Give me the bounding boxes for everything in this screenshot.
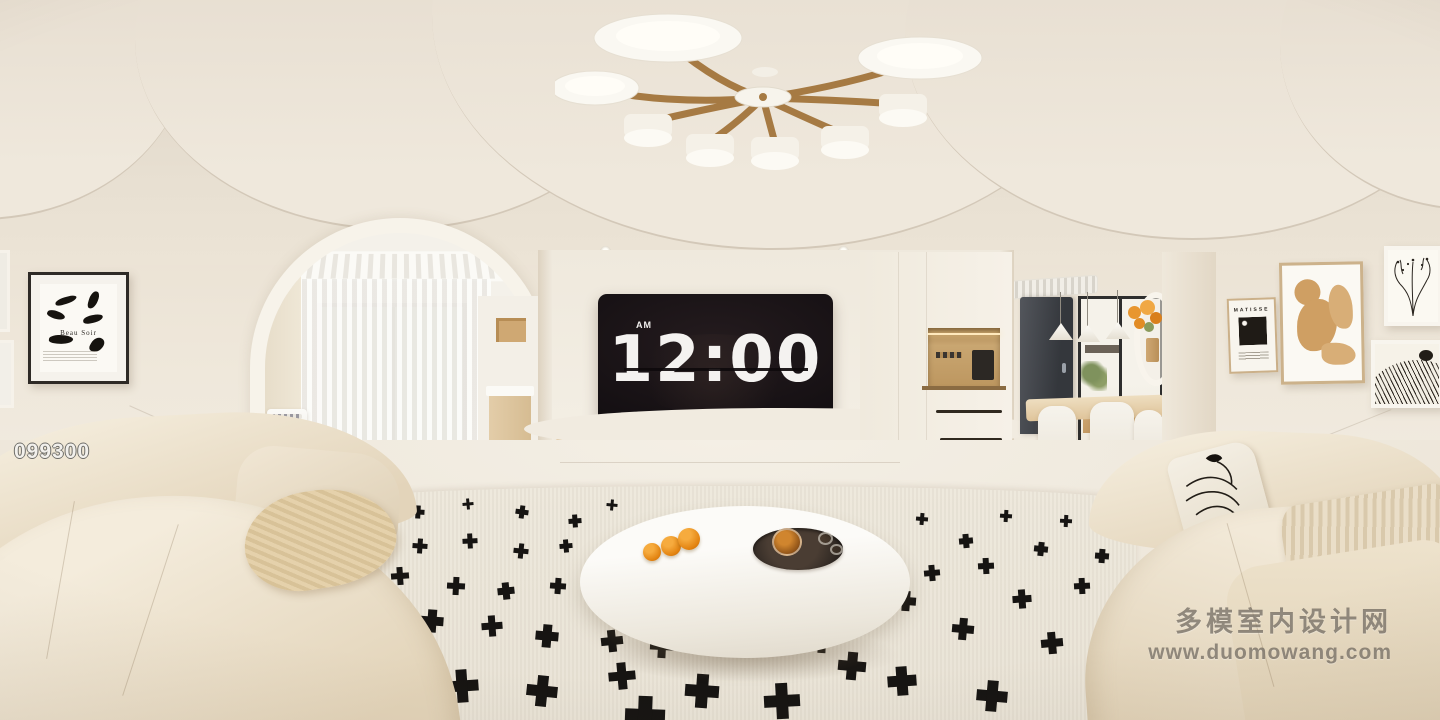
tree-line-art [1384, 246, 1440, 326]
wall-frame-partial [0, 250, 10, 332]
wood-arm-chandelier [555, 0, 985, 185]
beau-soir-art-print: Beau Soir [28, 272, 129, 384]
living-room-panorama: Beau Soir AM 12:00 [0, 0, 1440, 720]
panorama-id-label: 099300 [14, 440, 90, 464]
glass-cup [818, 532, 833, 545]
pendant-cord [1117, 290, 1118, 323]
poster-caption-lines [1239, 351, 1269, 360]
poster-title: MATISSE [1229, 306, 1274, 314]
coffee-table [580, 506, 910, 658]
niche-led-strip [928, 333, 1000, 335]
art-title: Beau Soir [31, 329, 126, 337]
watermark-site-name: 多模室内设计网 [1148, 600, 1392, 639]
niche-counter [922, 386, 1006, 390]
vanity-counter [486, 386, 534, 396]
flip-clock-split-line [624, 368, 808, 371]
glass-cup [830, 544, 843, 555]
tan-shape [1321, 342, 1355, 365]
kitchen-plant [1081, 361, 1107, 391]
wall-frame-partial [0, 340, 14, 408]
pendant-shade [1106, 322, 1130, 339]
coffee-machine [972, 350, 994, 380]
striped-figure-art [1371, 340, 1440, 408]
site-watermark: 多模室内设计网 www.duomowang.com [1148, 600, 1392, 665]
tile-seam [560, 462, 900, 463]
pendant-light [1106, 290, 1130, 340]
laundry-drying-rack [290, 251, 512, 281]
pendant-light [1076, 292, 1100, 342]
pendant-cord [1060, 292, 1061, 324]
leaf-pattern-block [1238, 317, 1267, 346]
glass-teapot [772, 528, 802, 556]
coffee-niche [928, 328, 1000, 386]
pendant-shade [1049, 323, 1073, 340]
watermark-site-url: www.duomowang.com [1148, 641, 1392, 665]
door-handle [1062, 363, 1066, 373]
figure-head [1419, 350, 1433, 361]
wood-shelf [496, 318, 526, 342]
matisse-poster: MATISSE [1227, 297, 1279, 374]
wall-outlets [936, 352, 962, 358]
abstract-tan-art [1279, 261, 1365, 384]
pendant-cord [1087, 292, 1088, 326]
figure-stripes [1371, 360, 1440, 408]
drawer-handle [936, 410, 1002, 413]
pendant-light [1049, 292, 1073, 340]
flower-vase [1146, 338, 1159, 362]
clock-time: 12:00 [598, 328, 833, 392]
pendant-shade [1076, 325, 1100, 342]
range-hood [1085, 345, 1119, 353]
flower-leaves [1144, 322, 1154, 332]
art-caption-lines [43, 351, 97, 361]
